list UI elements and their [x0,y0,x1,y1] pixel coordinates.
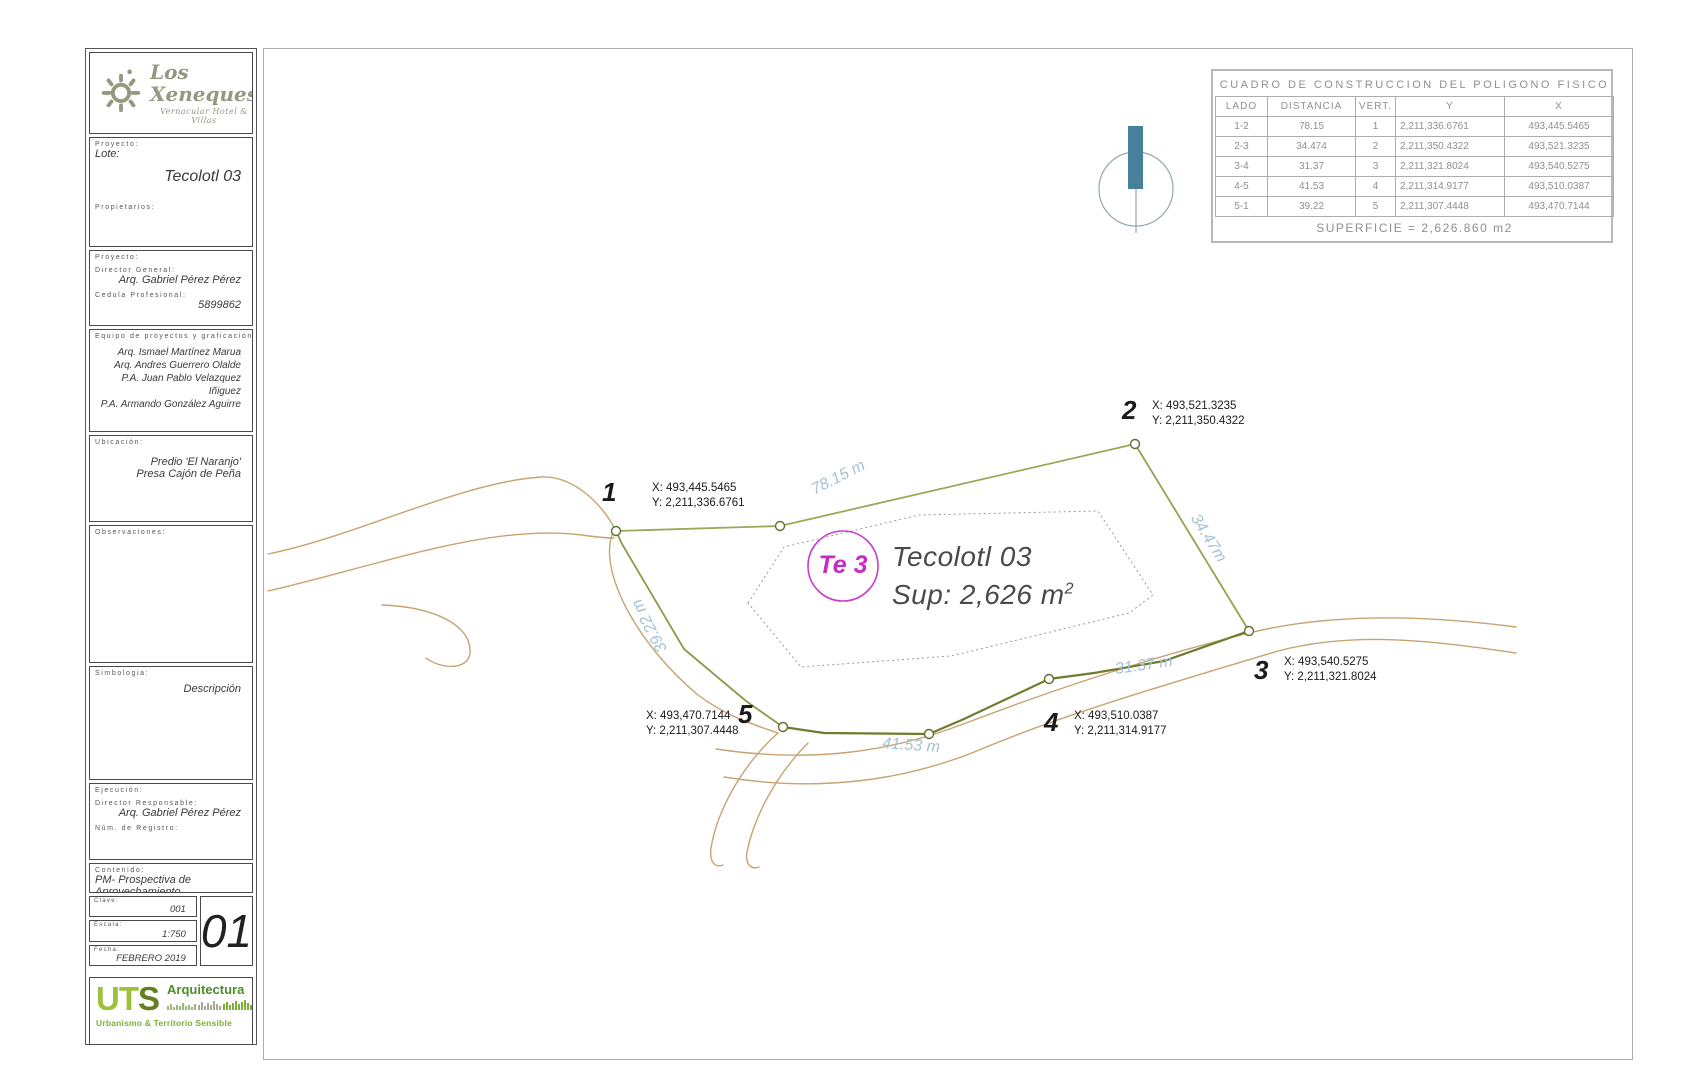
parcel-title: Tecolotl 03 [892,541,1032,573]
ejecucion-box: Ejecución: Director Responsable: Arq. Ga… [89,783,253,860]
label-lote: Lote: [95,148,247,160]
director-responsable-value: Arq. Gabriel Pérez Pérez [95,807,247,819]
brand-tagline: Vernacular Hotel & Villas [150,107,253,125]
fecha-box: Fecha: FEBRERO 2019 [89,945,197,966]
escala-box: Escala: 1:750 [89,920,197,941]
table-row: 3-431.373 2,211,321.8024493,540.5275 [1216,157,1614,177]
label-num-registro: Núm. de Registro: [95,825,247,832]
label-ubicacion: Ubicación: [95,439,247,446]
fecha-value: FEBRERO 2019 [94,954,192,964]
table-superficie: SUPERFICIE = 2,626.860 m2 [1216,217,1614,240]
construction-table: CUADRO DE CONSTRUCCION DEL POLIGONO FISI… [1211,69,1613,243]
sheet-number-box: 01 [200,896,253,966]
vertex-3-number: 3 [1254,657,1268,683]
label-equipo: Equipo de proyectos y graficación: [95,333,247,340]
ubicacion-line: Presa Cajón de Peña [95,468,247,480]
label-observaciones: Observaciones: [95,529,247,536]
lote-value: Tecolotl 03 [95,168,247,186]
vertex-4-number: 4 [1044,709,1058,735]
col-header-y: Y [1396,97,1505,117]
label-contenido: Contenido: [95,867,247,874]
label-director-general: Director General: [95,267,247,274]
vertex-3-coords: X: 493,540.5275Y: 2,211,321.8024 [1284,655,1377,685]
clave-value: 001 [94,905,192,915]
ubicacion-box: Ubicación: Predio 'El Naranjo' Presa Caj… [89,435,253,522]
equipo-box: Equipo de proyectos y graficación: Arq. … [89,329,253,432]
equipo-member: P.A. Juan Pablo Velazquez Iñiguez [95,372,247,398]
sun-logo-icon [98,65,144,122]
vertex-2-coords: X: 493,521.3235Y: 2,211,350.4322 [1152,399,1245,429]
label-clave: Clave: [94,898,192,904]
vertex-5-number: 5 [738,701,752,727]
simbologia-descripcion: Descripción [95,683,247,695]
label-propietarios: Propietarios: [95,204,247,211]
label-director-responsable: Director Responsable: [95,800,247,807]
label-proyecto: Proyecto: [95,141,247,148]
label-escala: Escala: [94,922,192,928]
vertex-2-number: 2 [1122,397,1136,423]
observaciones-box: Observaciones: [89,525,253,663]
table-title: CUADRO DE CONSTRUCCION DEL POLIGONO FISI… [1216,73,1614,97]
equipo-member: Arq. Andres Guerrero Olalde [95,359,247,372]
table-row: 4-541.534 2,211,314.9177493,510.0387 [1216,177,1614,197]
sheet-number: 01 [201,908,252,954]
uts-arquitectura: Arquitectura [167,983,253,997]
vertex-5-coords: X: 493,470.7144Y: 2,211,307.4448 [646,709,739,739]
uts-skyline-icon [167,997,253,1014]
uts-tagline: Urbanismo & Territorio Sensible [96,1018,246,1028]
label-fecha: Fecha: [94,947,192,953]
col-header-distancia: DISTANCIA [1268,97,1356,117]
col-header-vert: VERT. [1356,97,1396,117]
drawing-area: CUADRO DE CONSTRUCCION DEL POLIGONO FISI… [263,48,1633,1060]
label-ejecucion: Ejecución: [95,787,247,794]
vertex-4-coords: X: 493,510.0387Y: 2,211,314.9177 [1074,709,1167,739]
uts-acronym: UTS [96,982,159,1016]
label-simbologia: Simbologia: [95,670,247,677]
label-cedula: Cedula Profesional: [95,292,247,299]
cedula-value: 5899862 [95,299,247,311]
table-row: 2-334.4742 2,211,350.4322493,521.3235 [1216,137,1614,157]
col-header-x: X [1505,97,1614,117]
vertex-1-number: 1 [602,479,616,505]
north-compass-icon [1099,126,1173,233]
parcel-tag: Te 3 [808,551,878,580]
label-proyecto-2: Proyecto: [95,254,247,261]
title-block: Los Xeneques Vernacular Hotel & Villas P… [85,48,257,1045]
uts-logo-box: UTS Arquitectura [89,977,253,1045]
simbologia-box: Simbologia: Descripción [89,666,253,780]
director-general-value: Arq. Gabriel Pérez Pérez [95,274,247,286]
escala-value: 1:750 [94,930,192,940]
clave-box: Clave: 001 [89,896,197,917]
clave-escala-fecha-row: Clave: 001 Escala: 1:750 Fecha: FEBRERO … [89,896,253,966]
brand-name: Los Xeneques [150,61,253,105]
proyecto-box: Proyecto: Director General: Arq. Gabriel… [89,250,253,326]
contenido-value: PM- Prospectiva de Aprovechamiento [95,874,247,893]
lote-box: Proyecto: Lote: Tecolotl 03 Propietarios… [89,137,253,247]
ubicacion-line: Predio 'El Naranjo' [95,456,247,468]
col-header-lado: LADO [1216,97,1268,117]
parcel-area: Sup: 2,626 m2 [892,579,1074,611]
equipo-member: Arq. Ismael Martínez Marua [95,346,247,359]
vertex-1-coords: X: 493,445.5465Y: 2,211,336.6761 [652,481,745,511]
table-row: 5-139.225 2,211,307.4448493,470.7144 [1216,197,1614,217]
contenido-box: Contenido: PM- Prospectiva de Aprovecham… [89,863,253,893]
brand-box: Los Xeneques Vernacular Hotel & Villas [89,52,253,134]
table-row: 1-278.151 2,211,336.6761493,445.5465 [1216,117,1614,137]
equipo-member: P.A. Armando González Aguirre [95,398,247,411]
